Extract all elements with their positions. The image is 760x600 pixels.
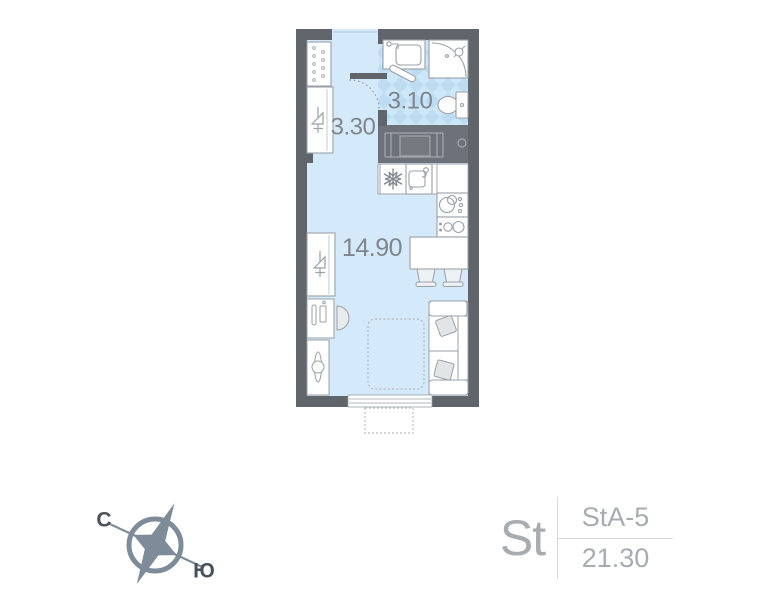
stool xyxy=(416,269,436,287)
hallway-area-label: 3.30 xyxy=(331,114,376,141)
apartment-info-block: St StA-5 21.30 xyxy=(488,497,673,579)
stool xyxy=(443,269,463,287)
pan-sink-icon xyxy=(437,193,468,217)
wall-stub-left xyxy=(296,153,313,163)
shoe-rack xyxy=(307,42,331,86)
sofa-pillow xyxy=(434,360,455,381)
wall-stub-door xyxy=(350,73,387,79)
entrance-door-opening xyxy=(332,29,378,40)
kitchen-sink-icon xyxy=(406,164,432,194)
floor-plan-card: 3.30 3.10 14.90 С Ю St StA-5 21.30 xyxy=(0,0,760,600)
dining-table xyxy=(410,237,468,269)
plan-code-label: StA-5 xyxy=(558,497,673,539)
bathroom-area-label: 3.10 xyxy=(388,88,433,115)
total-area-label: 21.30 xyxy=(558,539,673,580)
shower-icon xyxy=(429,40,468,78)
window xyxy=(348,395,432,407)
apartment-info-right: StA-5 21.30 xyxy=(557,497,673,579)
hallway-wardrobe xyxy=(307,87,333,153)
desk xyxy=(307,299,334,338)
living-room-area-label: 14.90 xyxy=(342,234,402,262)
compass-south-label: Ю xyxy=(193,560,215,583)
living-wardrobe xyxy=(307,233,335,296)
tv-stand xyxy=(307,340,329,395)
ac-unit-pad xyxy=(365,408,413,433)
compass-rose-icon: С Ю xyxy=(85,492,225,597)
hob-icon xyxy=(437,217,468,237)
fridge xyxy=(380,164,406,194)
wall-stub-bathroom xyxy=(378,110,387,126)
floor-plan: 3.30 3.10 14.90 xyxy=(296,29,479,441)
washbasin-icon xyxy=(383,40,425,69)
compass-north-label: С xyxy=(96,509,111,532)
apartment-type-label: St xyxy=(488,497,557,579)
sofa xyxy=(429,301,468,395)
